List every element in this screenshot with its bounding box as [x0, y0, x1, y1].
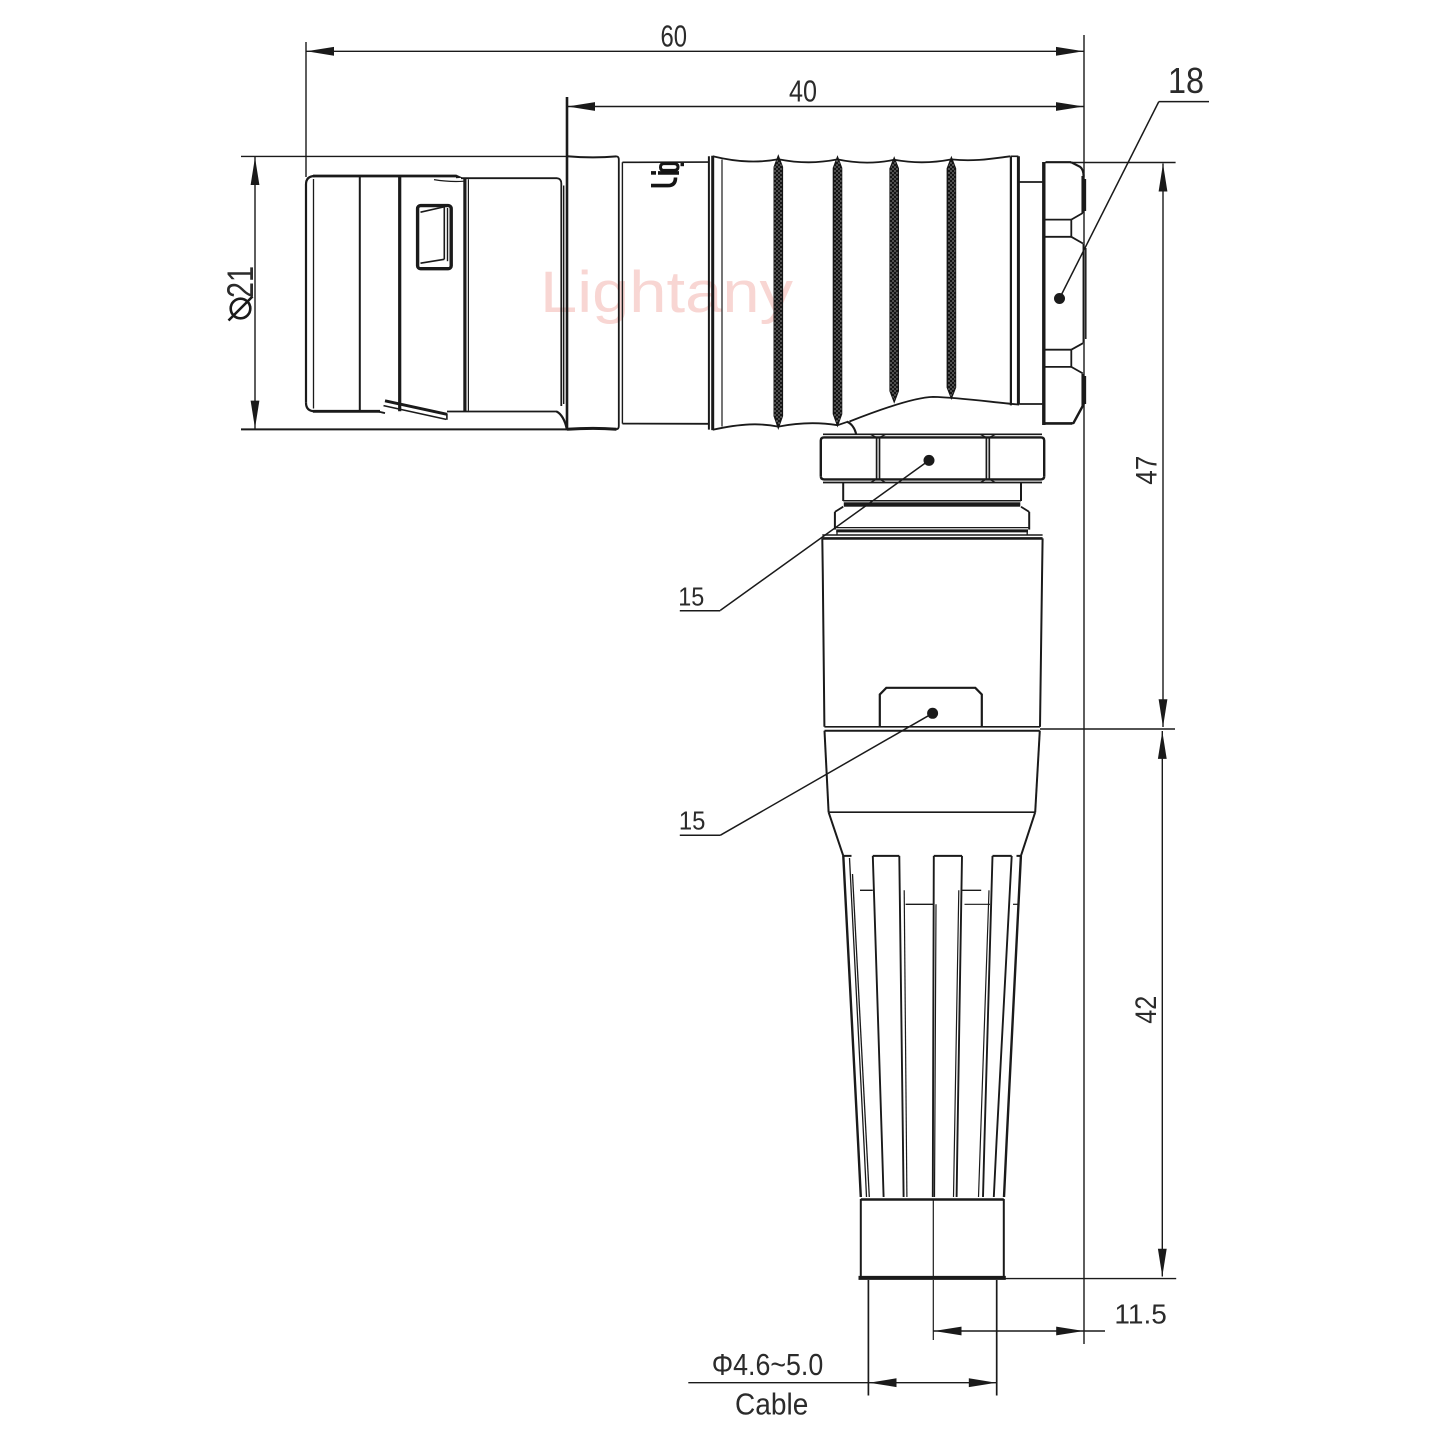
svg-text:21: 21 [220, 266, 261, 298]
svg-text:40: 40 [789, 74, 817, 109]
svg-text:Cable: Cable [735, 1387, 808, 1422]
svg-text:42: 42 [1130, 996, 1163, 1024]
svg-text:Φ4.6~5.0: Φ4.6~5.0 [712, 1347, 824, 1382]
svg-text:60: 60 [661, 19, 688, 54]
svg-text:15: 15 [678, 582, 704, 612]
svg-text:18: 18 [1168, 60, 1204, 101]
svg-text:Lightany: Lightany [540, 260, 793, 325]
svg-text:47: 47 [1131, 456, 1164, 485]
svg-text:15: 15 [679, 806, 706, 836]
svg-text:11.5: 11.5 [1114, 1299, 1166, 1330]
